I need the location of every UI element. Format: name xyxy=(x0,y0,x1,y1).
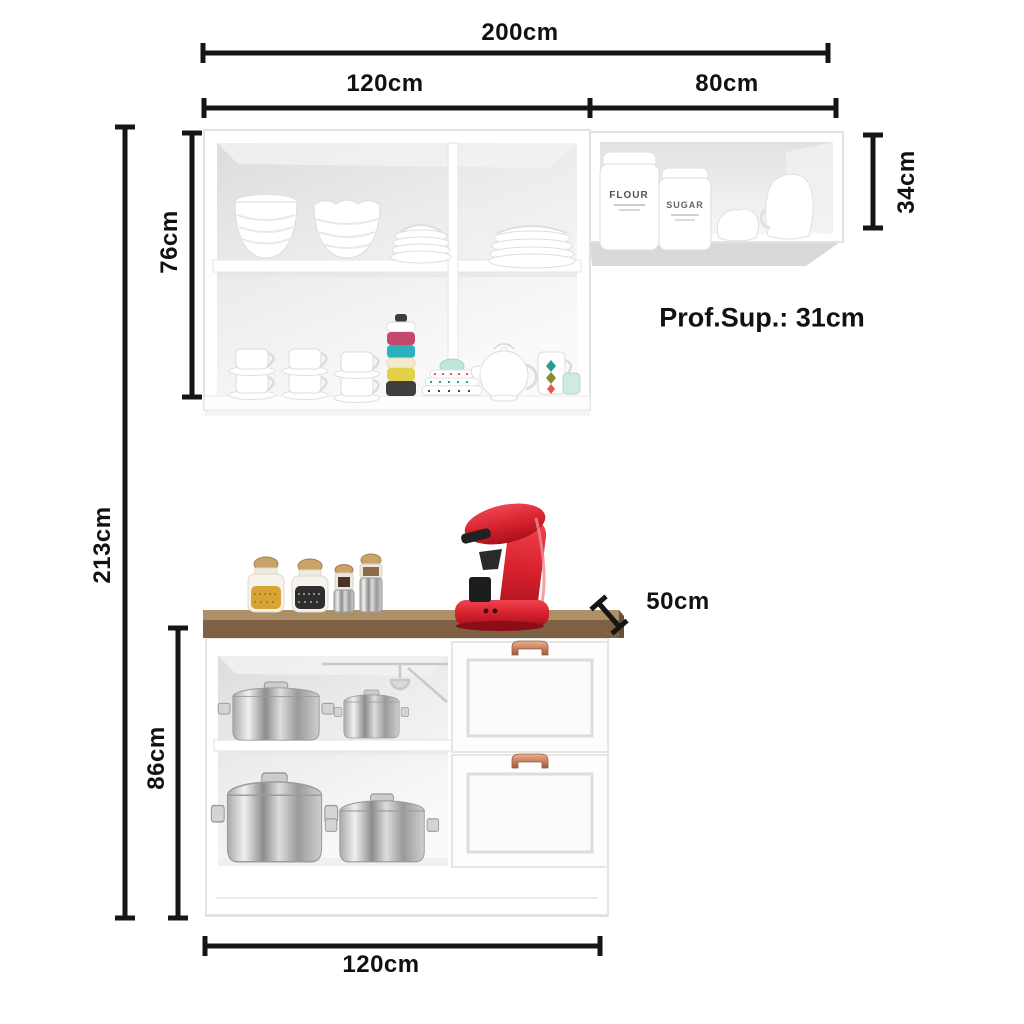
flour-canister: FLOUR xyxy=(600,152,659,250)
flour-label: FLOUR xyxy=(609,190,648,201)
label-wall-height: 76cm xyxy=(156,210,184,273)
dim-line-right-wall-height xyxy=(863,135,883,228)
drawer-bottom xyxy=(452,754,608,867)
product-dimension-diagram: FLOUR SUGAR xyxy=(0,0,1024,1024)
cup-stack-1 xyxy=(229,349,275,400)
dim-line-base-height xyxy=(168,628,188,918)
label-right-wall-height: 34cm xyxy=(893,150,921,213)
sugar-canister: SUGAR xyxy=(659,168,711,250)
dim-line-wall-split xyxy=(204,98,836,118)
label-total-height: 213cm xyxy=(89,506,117,583)
plate-stack-right xyxy=(489,226,575,268)
wall-cabinet-small: FLOUR SUGAR xyxy=(590,132,843,266)
sugar-label: SUGAR xyxy=(666,200,704,210)
espresso-cup-tower xyxy=(386,314,416,396)
wall-cabinet-large xyxy=(204,130,590,416)
spice-shaker-tall xyxy=(360,554,382,612)
label-wall-right-width: 80cm xyxy=(695,70,758,98)
coffee-machine xyxy=(455,497,549,631)
dim-line-total-height xyxy=(115,127,135,918)
countertop xyxy=(203,610,624,638)
label-counter-depth: 50cm xyxy=(646,588,709,616)
label-base-height: 86cm xyxy=(143,726,171,789)
base-cabinet xyxy=(206,638,608,917)
label-base-width: 120cm xyxy=(342,951,419,979)
cup-stack-2 xyxy=(282,349,328,400)
spice-jar-yellow xyxy=(248,557,284,612)
spice-jar-black xyxy=(292,559,328,612)
drawer-top xyxy=(452,641,608,752)
spice-shaker-small xyxy=(334,565,354,613)
cup-stack-3 xyxy=(334,352,380,403)
teal-cup xyxy=(563,373,580,394)
label-upper-depth-note: Prof.Sup.: 31cm xyxy=(659,303,865,334)
creamer-jug xyxy=(717,209,758,241)
furniture-illustration: FLOUR SUGAR xyxy=(0,0,1024,1024)
label-wall-left-width: 120cm xyxy=(346,70,423,98)
spice-jars xyxy=(248,554,382,612)
dim-line-wall-height xyxy=(182,133,202,397)
label-total-width: 200cm xyxy=(481,19,558,47)
